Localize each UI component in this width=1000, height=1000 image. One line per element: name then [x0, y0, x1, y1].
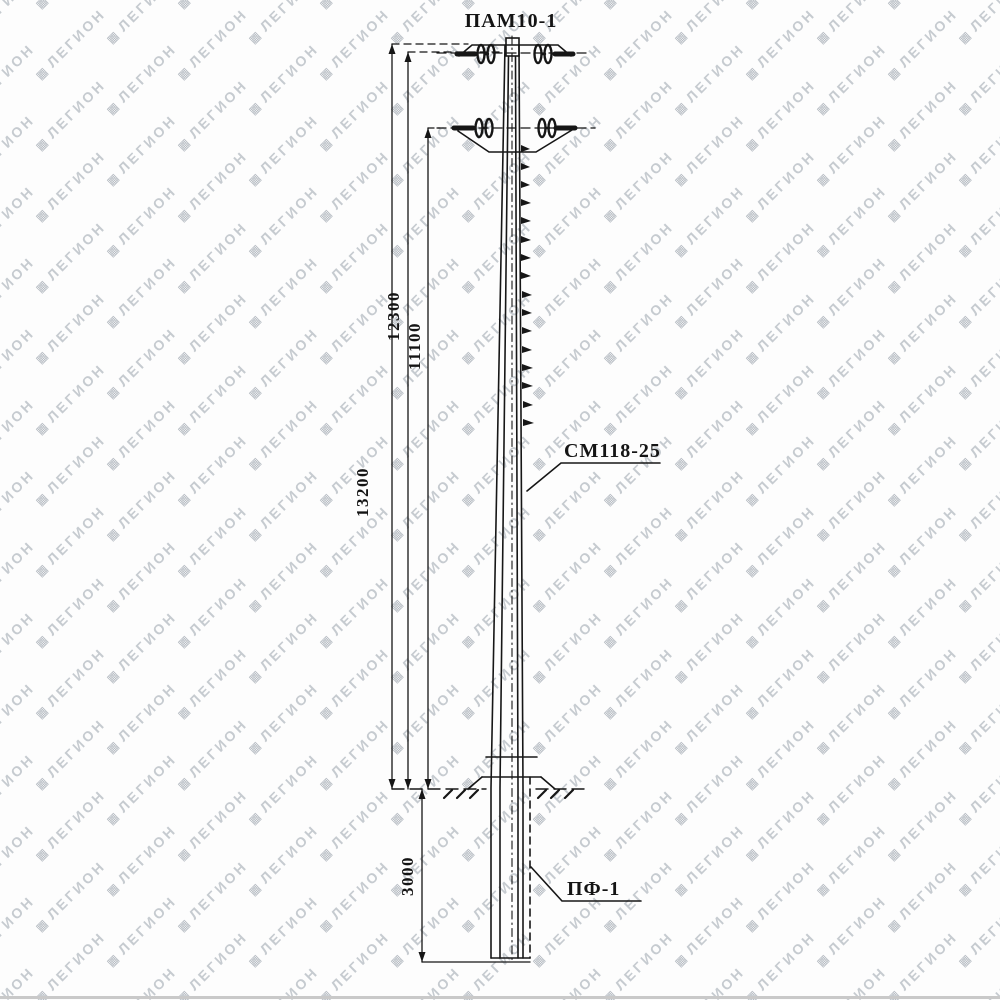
foundation-callout: ПФ-1 [531, 867, 641, 901]
dimension-lower-crossarm: 11100 [405, 128, 440, 789]
top-assembly-label: ПАМ10-1 [465, 10, 558, 32]
dimension-top-crossarm: 12300 [384, 52, 500, 789]
insulator-left [476, 119, 493, 137]
scan-edge-artifact [0, 996, 1000, 999]
insulator-left [478, 45, 495, 63]
dimension-embedment: 3000 [398, 789, 530, 962]
ground-line [392, 757, 585, 798]
pole-type-label: СМ118-25 [564, 440, 661, 462]
dim-3000: 3000 [398, 856, 417, 896]
dim-12300: 12300 [384, 291, 403, 341]
foundation-label: ПФ-1 [567, 878, 620, 900]
step-bolts [521, 145, 534, 426]
dim-13200: 13200 [353, 467, 372, 517]
pole-technical-drawing: ПАМ10-1 [0, 0, 1000, 1000]
pole-type-callout: СМ118-25 [527, 440, 661, 491]
dimension-total-height: 13200 [353, 44, 468, 789]
pole-body [491, 36, 530, 962]
insulator-right [535, 45, 552, 63]
dim-11100: 11100 [405, 322, 424, 370]
catalog-scan-page: ▦ЛЕГИОН▦ЛЕГИОН▦ЛЕГИОН▦ЛЕГИОН▦ЛЕГИОН▦ЛЕГИ… [0, 0, 1000, 1000]
